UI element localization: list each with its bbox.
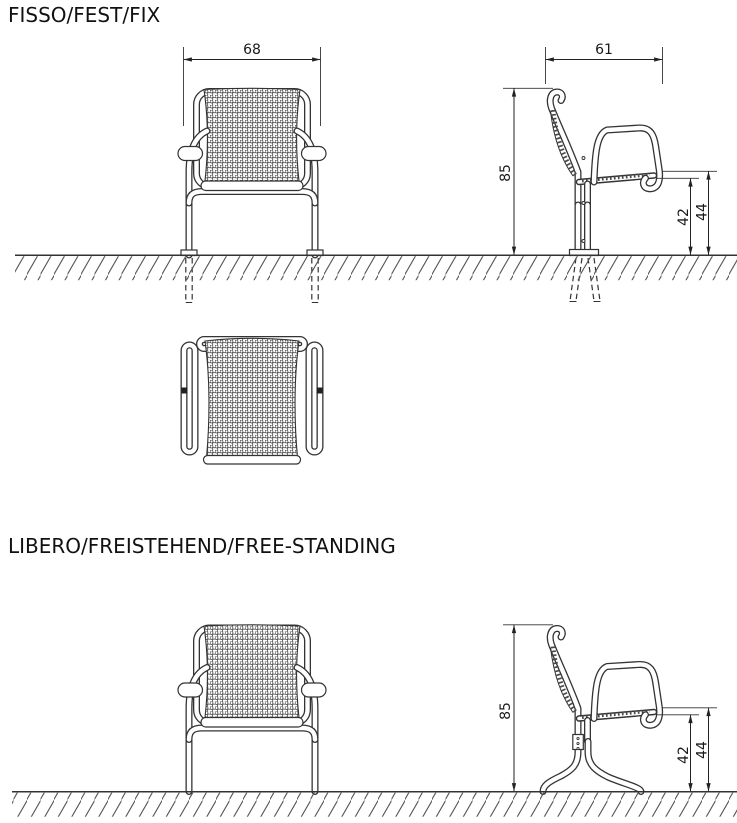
ground-fixed — [15, 255, 737, 280]
armrest-joint-right — [317, 388, 323, 394]
dim-depth-value: 61 — [595, 42, 613, 58]
dim-seat-underside-value: 42 — [676, 208, 692, 226]
dim-seat-underside-value: 42 — [676, 746, 692, 764]
dim-seat-top-value: 44 — [695, 203, 711, 221]
dim-height-value: 85 — [498, 702, 514, 720]
seat-mesh-top — [205, 338, 299, 457]
chair-technical-drawing: FISSO/FEST/FIX 68 — [0, 0, 737, 818]
technical-drawing-page: FISSO/FEST/FIX 68 — [0, 0, 737, 818]
dim-height-value: 85 — [498, 164, 514, 182]
ground-hatch-fixed — [15, 256, 737, 280]
ground-hatch-freestanding — [12, 793, 737, 817]
ground-freestanding — [12, 792, 737, 817]
dim-seat-top-value: 44 — [695, 741, 711, 759]
armrest-joint-left — [182, 388, 188, 394]
section-fixed-title: FISSO/FEST/FIX — [8, 3, 160, 27]
dim-width-value: 68 — [243, 42, 261, 58]
section-freestanding-title: LIBERO/FREISTEHEND/FREE-STANDING — [8, 534, 396, 558]
canvas-background — [0, 0, 737, 818]
